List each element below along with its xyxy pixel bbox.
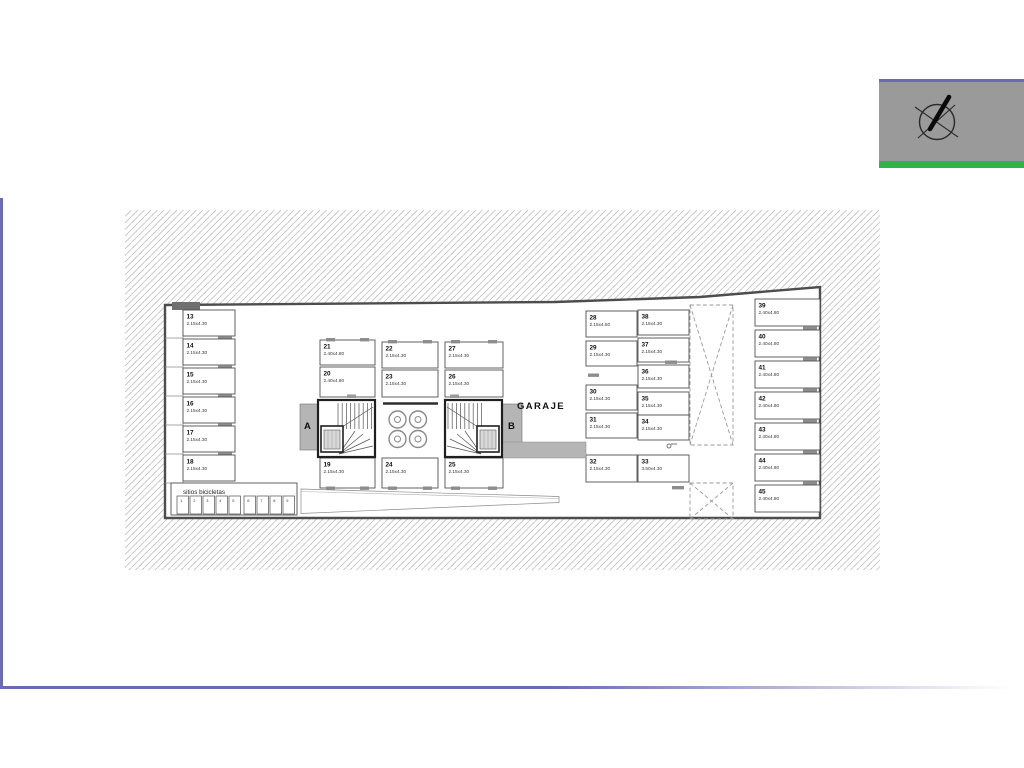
parking-space-26: 262.15x4.30 — [445, 370, 503, 397]
space-dimensions: 2.40x4.80 — [759, 496, 780, 501]
tank-core — [395, 436, 401, 442]
column-tick — [672, 486, 684, 489]
space-dimensions: 2.15x4.30 — [187, 408, 208, 413]
bike-slots: 123456789 — [177, 496, 295, 514]
space-dimensions: 2.40x4.80 — [759, 434, 780, 439]
space-number: 18 — [187, 459, 195, 466]
space-dimensions: 2.15x4.30 — [449, 381, 470, 386]
space-dimensions: 2.15x4.30 — [590, 352, 611, 357]
core-a-label: A — [304, 421, 311, 432]
parking-space-44: 442.40x4.80 — [755, 454, 820, 485]
space-number: 15 — [187, 372, 195, 379]
bike-slot — [203, 496, 215, 514]
space-dimensions: 2.15x4.30 — [187, 437, 208, 442]
column-tick — [360, 487, 369, 490]
space-number: 22 — [386, 346, 394, 353]
bike-slot — [283, 496, 295, 514]
column-tick — [451, 340, 460, 343]
space-number: 25 — [449, 462, 457, 469]
space-number: 45 — [759, 489, 767, 496]
space-dimensions: 2.15x4.30 — [642, 376, 663, 381]
space-number: 35 — [642, 396, 650, 403]
parking-space-45: 452.40x4.80 — [755, 485, 820, 512]
parking-space-33: 333.50x4.30 — [638, 455, 689, 482]
space-number: 24 — [386, 462, 394, 469]
column-tick — [803, 482, 817, 485]
space-dimensions: 3.50x4.30 — [642, 466, 663, 471]
compass-panel-green-stripe — [879, 161, 1024, 168]
bike-slot — [244, 496, 256, 514]
space-dimensions: 2.40x4.80 — [759, 372, 780, 377]
floor-plan: 132.15x4.30142.15x4.30152.15x4.30162.15x… — [125, 210, 880, 570]
left-accent-line — [0, 198, 3, 689]
space-number: 44 — [759, 458, 767, 465]
column-tick — [488, 340, 497, 343]
parking-space-34: 342.15x4.30 — [638, 415, 689, 440]
space-dimensions: 2.40x4.80 — [759, 341, 780, 346]
column-tick — [423, 340, 432, 343]
column-tick — [803, 358, 817, 361]
tank-core — [415, 436, 421, 442]
floor-plan-container: 132.15x4.30142.15x4.30152.15x4.30162.15x… — [125, 210, 880, 570]
stair-core-a: A — [300, 395, 375, 458]
parking-space-40: 402.40x4.80 — [755, 330, 820, 361]
bike-area-label: sitios bicicletas — [183, 489, 225, 496]
parking-space-19: 192.15x4.30 — [320, 458, 375, 490]
column-tick — [326, 338, 335, 341]
bike-slot-number: 1 — [180, 498, 182, 503]
parking-space-38: 382.15x4.30 — [638, 310, 689, 335]
space-dimensions: 2.15x4.30 — [187, 321, 208, 326]
parking-space-41: 412.40x4.80 — [755, 361, 820, 392]
bike-slot-number: 5 — [232, 498, 234, 503]
core-b-label: B — [508, 421, 515, 432]
parking-space-31: 312.15x4.30 — [586, 413, 637, 438]
space-dimensions: 2.15x4.30 — [386, 469, 407, 474]
space-dimensions: 2.15x4.30 — [642, 403, 663, 408]
parking-space-37: 372.15x4.30 — [638, 338, 689, 362]
parking-space-39: 392.40x4.80 — [755, 299, 820, 330]
bike-slot — [229, 496, 241, 514]
space-dimensions: 2.15x4.30 — [642, 426, 663, 431]
space-number: 20 — [324, 371, 332, 378]
tank-core — [395, 417, 401, 423]
column-tick — [388, 487, 397, 490]
space-number: 39 — [759, 303, 767, 310]
door-mark-a — [347, 395, 356, 399]
compass-panel-body — [879, 82, 1024, 161]
parking-space-25: 252.15x4.30 — [445, 458, 503, 490]
space-dimensions: 2.15x4.50 — [590, 322, 611, 327]
column-tick — [488, 487, 497, 490]
parking-space-36: 362.15x4.30 — [638, 365, 689, 388]
space-number: 36 — [642, 369, 650, 376]
space-number: 42 — [759, 396, 767, 403]
space-dimensions: 2.15x4.30 — [187, 379, 208, 384]
space-dimensions: 2.40x4.80 — [759, 403, 780, 408]
bike-slot — [190, 496, 202, 514]
bike-slot-number: 6 — [247, 498, 249, 503]
bicycle-area: sitios bicicletas 123456789 — [171, 483, 297, 515]
space-number: 38 — [642, 314, 650, 321]
column-tick — [423, 487, 432, 490]
compass-icon — [907, 91, 969, 153]
bike-slot-number: 8 — [273, 498, 275, 503]
space-dimensions: 2.15x4.30 — [324, 469, 345, 474]
parking-space-27: 272.15x4.30 — [445, 340, 503, 368]
space-number: 17 — [187, 430, 195, 437]
space-number: 34 — [642, 419, 650, 426]
space-number: 23 — [386, 374, 394, 381]
parking-space-23: 232.15x4.30 — [382, 370, 438, 397]
parking-space-32: 322.15x4.30 — [586, 455, 637, 482]
space-dimensions: 2.15x4.30 — [590, 424, 611, 429]
space-dimensions: 2.15x4.30 — [642, 349, 663, 354]
bike-slot-number: 3 — [206, 498, 208, 503]
space-number: 26 — [449, 374, 457, 381]
column-tick — [388, 340, 397, 343]
compass-panel — [879, 79, 1024, 168]
space-number: 21 — [324, 344, 332, 351]
parking-space-42: 422.40x4.80 — [755, 392, 820, 423]
column-tick — [803, 451, 817, 454]
column-tick — [360, 338, 369, 341]
column-tick — [326, 487, 335, 490]
door-mark-b — [450, 395, 459, 399]
bike-slot-number: 9 — [286, 498, 288, 503]
space-number: 13 — [187, 314, 195, 321]
space-dimensions: 2.15x4.30 — [642, 321, 663, 326]
space-dimensions: 2.15x4.30 — [449, 469, 470, 474]
parking-space-29: 292.15x4.30 — [586, 341, 637, 366]
parking-space-28: 282.15x4.50 — [586, 311, 637, 337]
space-number: 28 — [590, 315, 598, 322]
space-dimensions: 2.40x4.80 — [759, 465, 780, 470]
bike-slot — [216, 496, 228, 514]
space-number: 31 — [590, 417, 598, 424]
parking-space-35: 352.15x4.30 — [638, 392, 689, 415]
parking-space-22: 222.15x4.30 — [382, 340, 438, 368]
space-number: 37 — [642, 342, 650, 349]
bike-slot — [257, 496, 269, 514]
space-dimensions: 2.15x4.30 — [187, 350, 208, 355]
parking-space-21: 212.40x4.80 — [320, 338, 375, 365]
bike-slot — [270, 496, 282, 514]
space-number: 32 — [590, 459, 598, 466]
space-number: 29 — [590, 345, 598, 352]
space-dimensions: 2.15x4.30 — [386, 381, 407, 386]
space-number: 16 — [187, 401, 195, 408]
space-dimensions: 2.40x4.80 — [324, 351, 345, 356]
garage-corridor — [502, 442, 586, 458]
space-number: 19 — [324, 462, 332, 469]
space-dimensions: 2.40x4.80 — [759, 310, 780, 315]
parking-space-24: 242.15x4.30 — [382, 458, 438, 490]
space-dimensions: 2.15x4.30 — [590, 466, 611, 471]
space-number: 30 — [590, 389, 598, 396]
column-tick — [665, 361, 677, 364]
space-number: 27 — [449, 346, 457, 353]
parking-space-20: 202.40x4.80 — [320, 367, 375, 397]
column-tick — [588, 374, 599, 377]
space-number: 14 — [187, 343, 195, 350]
space-dimensions: 2.15x4.30 — [187, 466, 208, 471]
bike-slot-number: 7 — [260, 498, 262, 503]
space-number: 40 — [759, 334, 767, 341]
space-dimensions: 2.15x4.30 — [386, 353, 407, 358]
tank-core — [415, 417, 421, 423]
space-number: 33 — [642, 459, 650, 466]
space-dimensions: 2.15x4.30 — [590, 396, 611, 401]
garage-label: GARAJE — [517, 401, 565, 412]
space-number: 43 — [759, 427, 767, 434]
bike-slot-number: 2 — [193, 498, 195, 503]
space-dimensions: 2.40x4.80 — [324, 378, 345, 383]
column-tick — [803, 389, 817, 392]
page: 132.15x4.30142.15x4.30152.15x4.30162.15x… — [0, 0, 1024, 768]
column-tick — [803, 327, 817, 330]
column-tick — [451, 487, 460, 490]
space-dimensions: 2.15x4.30 — [449, 353, 470, 358]
bike-slot — [177, 496, 189, 514]
space-number: 41 — [759, 365, 767, 372]
parking-space-43: 432.40x4.80 — [755, 423, 820, 454]
parking-space-30: 302.15x4.30 — [586, 385, 637, 410]
plan-corner-tag — [172, 302, 200, 310]
column-tick — [803, 420, 817, 423]
bottom-accent-line — [0, 686, 1010, 689]
